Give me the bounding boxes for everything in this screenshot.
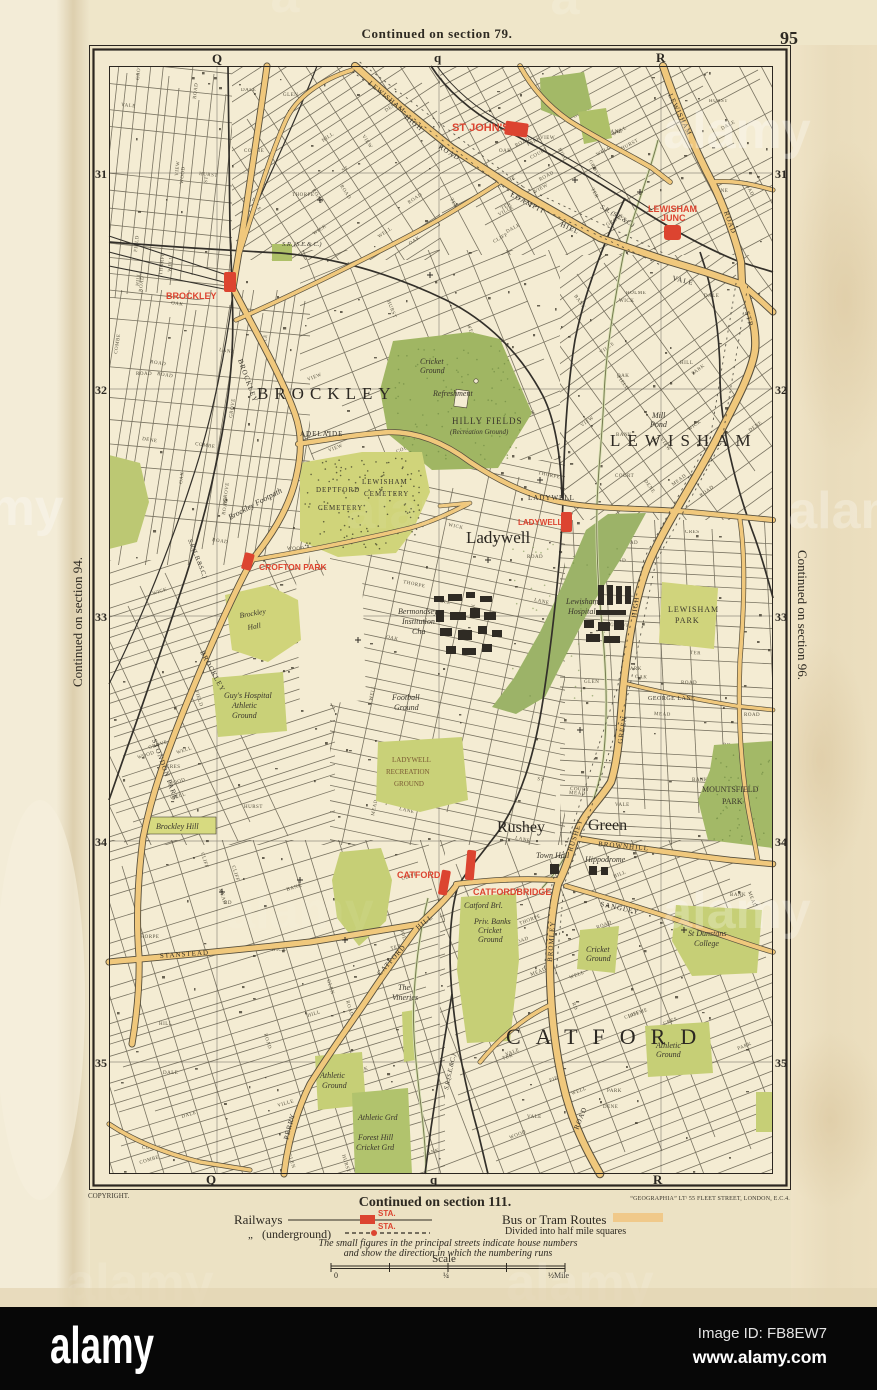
- svg-text:a: a: [551, 0, 581, 26]
- svg-text:Athletic: Athletic: [655, 1041, 681, 1050]
- svg-text:ROAD: ROAD: [681, 681, 697, 686]
- svg-text:Ground: Ground: [322, 1081, 348, 1090]
- svg-text:Railways: Railways: [234, 1212, 282, 1227]
- svg-text:alamy: alamy: [788, 482, 877, 540]
- svg-text:JUNC: JUNC: [661, 213, 686, 223]
- svg-text:Continued on section 111.: Continued on section 111.: [359, 1195, 511, 1210]
- svg-text:COURT: COURT: [570, 787, 589, 793]
- svg-text:Ground: Ground: [586, 954, 612, 963]
- svg-text:LADYWELL: LADYWELL: [392, 756, 431, 764]
- svg-text:34: 34: [775, 835, 787, 849]
- svg-text:STA.: STA.: [378, 1209, 396, 1218]
- svg-text:Pond: Pond: [649, 420, 668, 429]
- svg-text:R: R: [656, 50, 666, 65]
- svg-text:Ground: Ground: [478, 935, 504, 944]
- svg-text:CROFTON PARK: CROFTON PARK: [259, 562, 328, 572]
- svg-text:GLEN: GLEN: [584, 680, 599, 685]
- svg-text:Hippodrome: Hippodrome: [584, 855, 626, 864]
- svg-text:33: 33: [775, 610, 787, 624]
- svg-text:LADYWELL: LADYWELL: [518, 518, 563, 527]
- svg-text:ROAD: ROAD: [527, 555, 543, 560]
- svg-text:Image ID: FB8EW7: Image ID: FB8EW7: [698, 1325, 827, 1342]
- svg-text:q: q: [434, 50, 442, 65]
- svg-text:35: 35: [95, 1056, 107, 1070]
- svg-text:34: 34: [95, 835, 107, 849]
- svg-text:HILL: HILL: [159, 1022, 172, 1027]
- svg-text:PARK: PARK: [722, 797, 743, 806]
- svg-text:www.alamy.com: www.alamy.com: [692, 1347, 827, 1367]
- svg-text:WICK: WICK: [619, 299, 634, 304]
- svg-text:Guy's Hospital: Guy's Hospital: [224, 691, 272, 700]
- svg-text:32: 32: [95, 383, 107, 397]
- svg-text:Cricket: Cricket: [420, 357, 444, 366]
- svg-text:HOLME: HOLME: [626, 291, 646, 296]
- svg-text:¼: ¼: [443, 1271, 449, 1280]
- svg-text:Bus or Tram Routes: Bus or Tram Routes: [502, 1212, 606, 1227]
- svg-text:Ground: Ground: [232, 711, 258, 720]
- svg-text:(Recreation Ground): (Recreation Ground): [450, 428, 509, 436]
- svg-text:PARK: PARK: [675, 616, 700, 625]
- svg-text:Football: Football: [391, 693, 420, 702]
- svg-text:33: 33: [95, 610, 107, 624]
- svg-text:DALE: DALE: [241, 88, 256, 93]
- svg-text:Athletic Grd: Athletic Grd: [357, 1113, 398, 1122]
- svg-text:OAK: OAK: [499, 149, 511, 154]
- svg-text:COPYRIGHT.: COPYRIGHT.: [88, 1192, 130, 1200]
- svg-text:alamy: alamy: [226, 882, 374, 940]
- svg-text:S.R. (S.E.& C.): S.R. (S.E.& C.): [282, 241, 322, 248]
- svg-text:GEORGE LANE: GEORGE LANE: [648, 696, 695, 702]
- svg-text:CATFORD: CATFORD: [397, 870, 441, 880]
- svg-text:Rushey: Rushey: [497, 819, 545, 836]
- svg-text:Continued on section 79.: Continued on section 79.: [362, 26, 513, 41]
- svg-text:31: 31: [775, 167, 787, 181]
- svg-text:Green: Green: [588, 817, 627, 834]
- svg-text:Continued on section 96.: Continued on section 96.: [795, 550, 810, 680]
- svg-text:32: 32: [775, 383, 787, 397]
- svg-text:Cha: Cha: [412, 627, 425, 636]
- svg-text:The: The: [398, 983, 410, 992]
- svg-text:Q: Q: [206, 1172, 216, 1187]
- svg-text:Brockley Hill: Brockley Hill: [156, 822, 199, 831]
- svg-text:Cricket: Cricket: [478, 926, 502, 935]
- svg-text:Divided into half mile squares: Divided into half mile squares: [505, 1226, 626, 1237]
- svg-text:Ground: Ground: [656, 1050, 682, 1059]
- svg-text:Town Hall: Town Hall: [536, 851, 570, 860]
- svg-text:TER: TER: [690, 651, 701, 657]
- svg-text:Bermondsey: Bermondsey: [398, 607, 438, 616]
- svg-text:Athletic: Athletic: [319, 1071, 345, 1080]
- svg-text:Institution: Institution: [401, 617, 435, 626]
- svg-text:HURST: HURST: [244, 805, 263, 810]
- svg-text:Continued on section 94.: Continued on section 94.: [70, 557, 85, 687]
- svg-text:BROCKLEY: BROCKLEY: [166, 291, 217, 301]
- svg-text:MOUNTSFIELD: MOUNTSFIELD: [702, 785, 759, 794]
- svg-text:31: 31: [95, 167, 107, 181]
- svg-text:VALE: VALE: [527, 1115, 542, 1120]
- svg-text:„: „: [248, 1229, 253, 1241]
- svg-text:Vineries: Vineries: [392, 993, 418, 1002]
- svg-text:95: 95: [780, 28, 798, 48]
- svg-text:HILLY FIELDS: HILLY FIELDS: [452, 416, 523, 426]
- svg-text:VALE: VALE: [615, 803, 630, 808]
- svg-text:ROAD: ROAD: [136, 372, 152, 377]
- svg-text:Q: Q: [212, 51, 222, 66]
- svg-text:COURT: COURT: [615, 474, 634, 479]
- svg-text:LEWISHAM: LEWISHAM: [668, 605, 719, 614]
- svg-text:Forest Hill: Forest Hill: [357, 1133, 394, 1142]
- svg-text:Hospital: Hospital: [567, 607, 596, 616]
- svg-text:a: a: [271, 0, 301, 24]
- svg-text:ADELAIDE: ADELAIDE: [300, 430, 343, 438]
- svg-text:HILL: HILL: [680, 361, 693, 366]
- svg-text:DALE: DALE: [163, 1071, 178, 1076]
- svg-text:alamy: alamy: [0, 479, 64, 537]
- svg-text:alamy: alamy: [50, 1317, 154, 1375]
- svg-text:RECREATION: RECREATION: [386, 768, 430, 776]
- svg-text:Ground: Ground: [420, 366, 446, 375]
- svg-text:R: R: [653, 1172, 663, 1187]
- svg-text:MEAD: MEAD: [654, 712, 671, 718]
- svg-text:THORPE: THORPE: [292, 193, 314, 198]
- svg-text:GLEN: GLEN: [283, 93, 298, 98]
- svg-text:ROAD: ROAD: [744, 713, 760, 718]
- svg-text:CRES: CRES: [685, 530, 700, 535]
- svg-text:35: 35: [775, 1056, 787, 1070]
- svg-text:STA.: STA.: [378, 1222, 396, 1231]
- svg-text:OAK: OAK: [635, 675, 648, 681]
- svg-text:Scale: Scale: [432, 1253, 456, 1265]
- svg-text:VIEW: VIEW: [540, 136, 555, 141]
- svg-text:“GEOGRAPHIA” LTᵗ 55 FLEET STRE: “GEOGRAPHIA” LTᵗ 55 FLEET STREET, LONDON…: [630, 1195, 790, 1202]
- svg-text:PARK: PARK: [607, 1089, 622, 1094]
- svg-text:ST JOHN'S: ST JOHN'S: [452, 122, 510, 134]
- svg-text:alamy: alamy: [663, 882, 811, 940]
- svg-text:CATFORDBRIDGE: CATFORDBRIDGE: [473, 887, 551, 897]
- svg-text:LEWISHAM: LEWISHAM: [610, 431, 758, 450]
- svg-text:DENE: DENE: [603, 1105, 618, 1110]
- svg-text:alamy: alamy: [346, 482, 494, 540]
- svg-text:LADYWELL: LADYWELL: [528, 494, 575, 502]
- svg-text:Cricket: Cricket: [586, 945, 610, 954]
- svg-text:Mill: Mill: [651, 411, 666, 420]
- svg-text:GROUND: GROUND: [394, 780, 424, 788]
- svg-text:College: College: [694, 939, 719, 948]
- svg-text:Athletic: Athletic: [231, 701, 257, 710]
- svg-text:alamy: alamy: [663, 102, 811, 160]
- svg-text:Catford Brl.: Catford Brl.: [464, 901, 503, 910]
- svg-text:Cricket Grd: Cricket Grd: [356, 1143, 395, 1152]
- svg-text:Priv. Banks: Priv. Banks: [473, 917, 511, 926]
- svg-text:BROCKLEY: BROCKLEY: [257, 384, 397, 403]
- svg-text:0: 0: [334, 1271, 338, 1280]
- svg-text:q: q: [430, 1172, 438, 1187]
- svg-text:Ground: Ground: [394, 703, 420, 712]
- svg-text:Refreshment: Refreshment: [432, 389, 473, 398]
- svg-text:Lewisham: Lewisham: [565, 597, 599, 606]
